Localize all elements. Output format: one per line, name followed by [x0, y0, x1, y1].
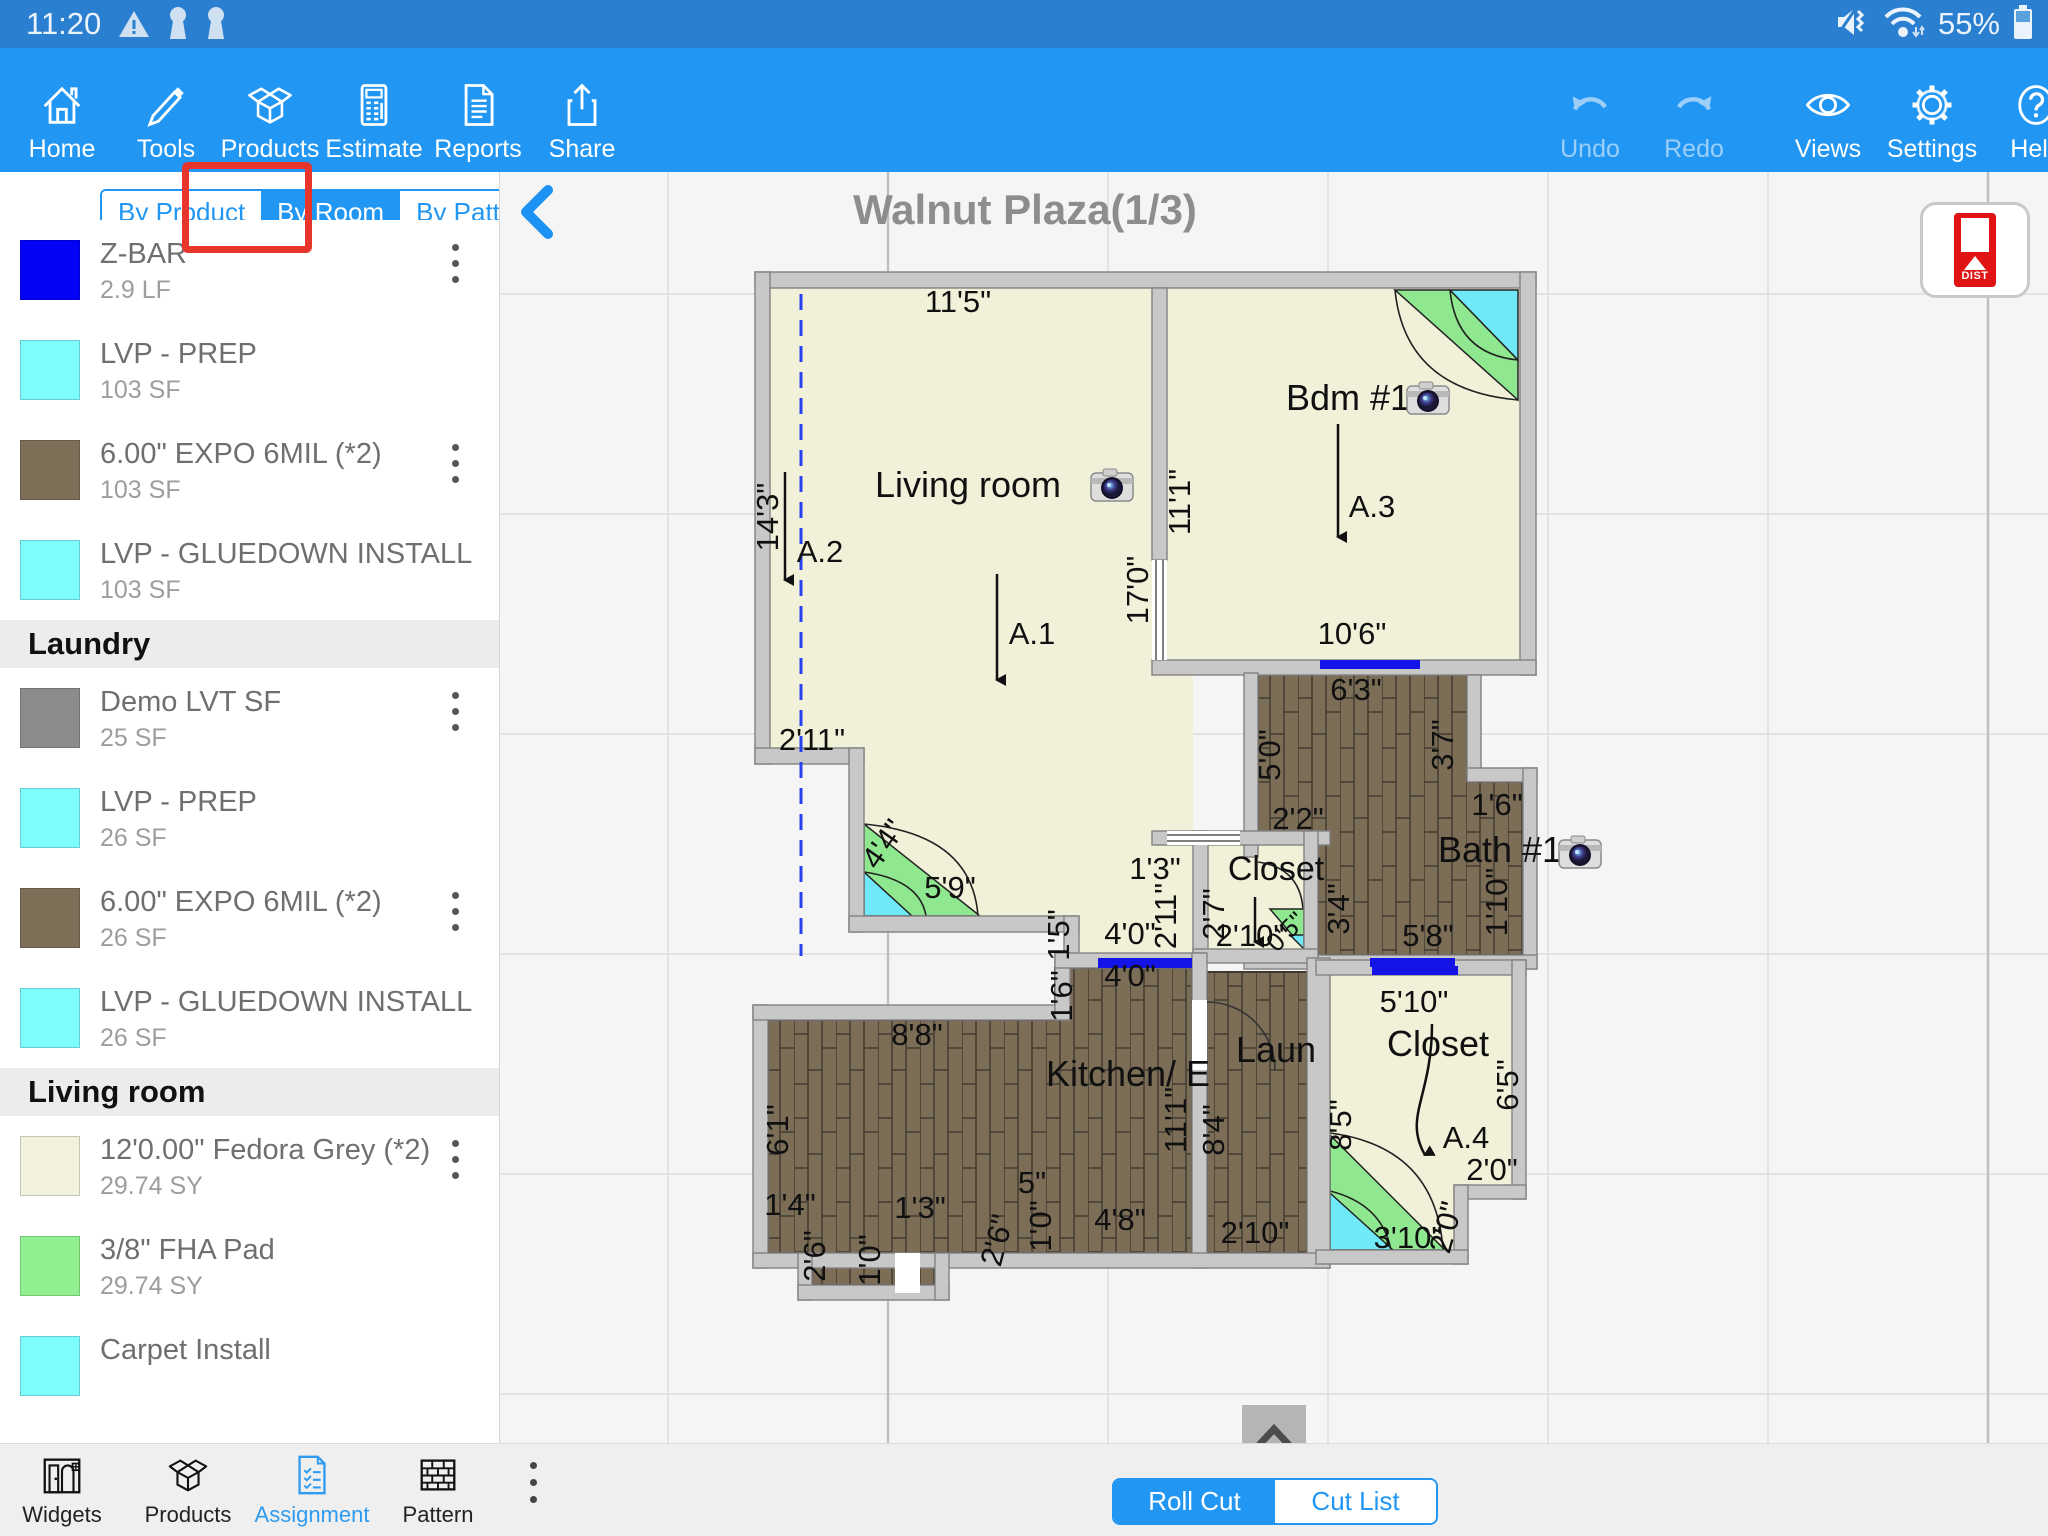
section-header: Laundry [0, 620, 500, 668]
dimension-label: 10'6" [1318, 616, 1387, 651]
color-swatch [20, 888, 80, 948]
item-menu-icon[interactable] [452, 1140, 460, 1188]
dimension-label: 2'0" [1466, 1152, 1517, 1187]
color-swatch [20, 240, 80, 300]
help-button[interactable]: Help [1984, 48, 2048, 172]
dimension-label: 3'4" [1321, 883, 1356, 934]
list-item[interactable]: 3/8" FHA Pad 29.74 SY [0, 1216, 500, 1316]
nav-products[interactable]: Products [128, 1452, 248, 1528]
dimension-label: 1'5" [1041, 909, 1076, 960]
dimension-label: 1'4" [764, 1187, 815, 1222]
dimension-label: 2'6" [797, 1230, 832, 1281]
dimension-label: A.2 [797, 534, 844, 569]
share-button[interactable]: Share [530, 48, 634, 172]
dimension-label: A.1 [1009, 616, 1056, 651]
color-swatch [20, 988, 80, 1048]
more-menu-icon[interactable] [530, 1462, 537, 1513]
list-item[interactable]: Demo LVT SF 25 SF [0, 668, 500, 768]
home-icon [36, 79, 88, 131]
dimension-label: 5'10" [1380, 984, 1449, 1019]
redo-icon [1668, 79, 1720, 131]
nav-assignment[interactable]: Assignment [252, 1452, 372, 1528]
color-swatch [20, 788, 80, 848]
dimension-label: 6'3" [1330, 672, 1381, 707]
section-header: Living room [0, 1068, 500, 1116]
dimension-label: 2'10" [1221, 1215, 1290, 1250]
dist-tool-button[interactable]: DIST [1920, 202, 2030, 298]
list-item[interactable]: LVP - GLUEDOWN INSTALL 103 SF [0, 520, 500, 620]
color-swatch [20, 340, 80, 400]
assignment-checklist-icon [289, 1452, 335, 1498]
dimension-label: A.4 [1443, 1120, 1490, 1155]
list-item[interactable]: 12'0.00" Fedora Grey (*2) 29.74 SY [0, 1116, 500, 1216]
product-sidebar: By Product By Room By Pattern Kitchen/ E… [0, 172, 500, 1443]
nav-pattern[interactable]: Pattern [378, 1452, 498, 1528]
cut-mode-toggle: Roll Cut Cut List [1112, 1478, 1438, 1525]
dist-icon: DIST [1954, 213, 1996, 287]
list-item[interactable]: LVP - PREP 26 SF [0, 768, 500, 868]
item-menu-icon[interactable] [452, 244, 460, 292]
dimension-label: 8'8" [891, 1017, 942, 1052]
battery-percent: 55% [1938, 6, 2000, 42]
dimension-label: Closet [1387, 1023, 1489, 1064]
notification-pin-icon [205, 7, 227, 41]
pencil-icon [140, 79, 192, 131]
open-box-icon [165, 1452, 211, 1498]
wifi-icon [1882, 5, 1926, 44]
undo-button[interactable]: Undo [1538, 48, 1642, 172]
dimension-label: 11'1" [1158, 1087, 1193, 1153]
question-icon [2010, 79, 2048, 131]
annotation-highlight-box [182, 162, 312, 253]
dimension-label: 2'2" [1272, 801, 1323, 836]
dimension-label: 6'1" [760, 1104, 795, 1155]
color-swatch [20, 1136, 80, 1196]
color-swatch [20, 1236, 80, 1296]
main-toolbar: Home Tools Products Estimate Reports Sha… [0, 48, 2048, 172]
tools-button[interactable]: Tools [114, 48, 218, 172]
dimension-label: 11'1" [1162, 469, 1197, 535]
item-menu-icon[interactable] [452, 692, 460, 740]
open-box-icon [244, 79, 296, 131]
status-bar: 11:20 55% [0, 0, 2048, 48]
color-swatch [20, 1336, 80, 1396]
camera-photo-icon[interactable] [1407, 382, 1449, 414]
widgets-door-icon [39, 1452, 85, 1498]
dimension-label: 5" [1018, 1165, 1046, 1200]
eye-icon [1802, 79, 1854, 131]
dimension-label: 1'6" [1044, 970, 1079, 1021]
mute-icon [1834, 5, 1870, 44]
back-button[interactable] [514, 184, 560, 240]
pattern-bricks-icon [415, 1452, 461, 1498]
dimension-label: A.3 [1349, 489, 1396, 524]
warning-icon [117, 9, 151, 39]
item-menu-icon[interactable] [452, 444, 460, 492]
dimension-label: 5'9" [924, 870, 975, 905]
estimate-button[interactable]: Estimate [322, 48, 426, 172]
list-item[interactable]: LVP - PREP 103 SF [0, 320, 500, 420]
dimension-label: 1'0" [852, 1234, 887, 1285]
dimension-label: 1'3" [894, 1190, 945, 1225]
dimension-label: 1'3" [1129, 851, 1180, 886]
dimension-label: 14'3" [750, 483, 785, 552]
undo-icon [1564, 79, 1616, 131]
floorplan-canvas[interactable]: 11'5"14'3"A.2Living roomA.12'11"4'4"5'9"… [500, 172, 2048, 1536]
room-floors [768, 288, 1523, 1285]
dimension-label: 4'0" [1104, 958, 1155, 993]
products-button[interactable]: Products [218, 48, 322, 172]
camera-photo-icon[interactable] [1559, 836, 1601, 868]
dimension-label: 1'10" [1479, 868, 1514, 937]
dimension-label: Living room [875, 464, 1061, 505]
battery-icon [2012, 4, 2034, 45]
dimension-label: 3'10" [1374, 1220, 1443, 1255]
dimension-label: Laun [1236, 1029, 1316, 1070]
clock: 11:20 [26, 6, 101, 42]
camera-photo-icon[interactable] [1091, 469, 1133, 501]
dimension-label: 5'8" [1402, 918, 1453, 953]
list-item[interactable]: Carpet Install [0, 1316, 500, 1416]
redo-button[interactable]: Redo [1642, 48, 1746, 172]
list-item[interactable]: 6.00" EXPO 6MIL (*2) 26 SF [0, 868, 500, 968]
dimension-label: Bath #1 [1438, 829, 1562, 870]
list-item[interactable]: LVP - GLUEDOWN INSTALL 26 SF [0, 968, 500, 1068]
reports-button[interactable]: Reports [426, 48, 530, 172]
color-swatch [20, 688, 80, 748]
dimension-label: Bdm #1 [1286, 377, 1410, 418]
dimension-label: 5'0" [1252, 729, 1287, 780]
dimension-label: 17'0" [1120, 556, 1155, 625]
report-doc-icon [452, 79, 504, 131]
roll-cut-button[interactable]: Roll Cut [1114, 1480, 1275, 1523]
dimension-label: 8'4" [1196, 1104, 1231, 1155]
dimension-label: 8'5" [1323, 1099, 1358, 1150]
dimension-label: 11'5" [925, 284, 991, 319]
color-swatch [20, 440, 80, 500]
list-item[interactable]: 6.00" EXPO 6MIL (*2) 103 SF [0, 420, 500, 520]
item-menu-icon[interactable] [452, 892, 460, 940]
dimension-label: 1'0" [1023, 1200, 1058, 1251]
dimension-label: 1'6" [1471, 787, 1522, 822]
notification-pin-icon [167, 7, 189, 41]
bottom-nav-bar: Widgets Products Assignment Pattern Roll… [0, 1443, 2048, 1536]
page-title: Walnut Plaza(1/3) [800, 186, 1250, 234]
drawing-canvas[interactable]: 11'5"14'3"A.2Living roomA.12'11"4'4"5'9"… [500, 172, 2048, 1536]
views-button[interactable]: Views [1776, 48, 1880, 172]
dimension-label: 3'7" [1425, 719, 1460, 770]
dimension-label: 6'5" [1490, 1059, 1525, 1110]
home-button[interactable]: Home [10, 48, 114, 172]
share-icon [556, 79, 608, 131]
gear-icon [1906, 79, 1958, 131]
nav-widgets[interactable]: Widgets [2, 1452, 122, 1528]
cut-list-button[interactable]: Cut List [1275, 1480, 1436, 1523]
dimension-label: 2'11" [779, 722, 845, 757]
settings-button[interactable]: Settings [1880, 48, 1984, 172]
dimension-label: 4'8" [1094, 1202, 1145, 1237]
calculator-icon [348, 79, 400, 131]
color-swatch [20, 540, 80, 600]
dimension-label: 4'0" [1104, 916, 1155, 951]
dimension-label: Closet [1228, 850, 1325, 888]
